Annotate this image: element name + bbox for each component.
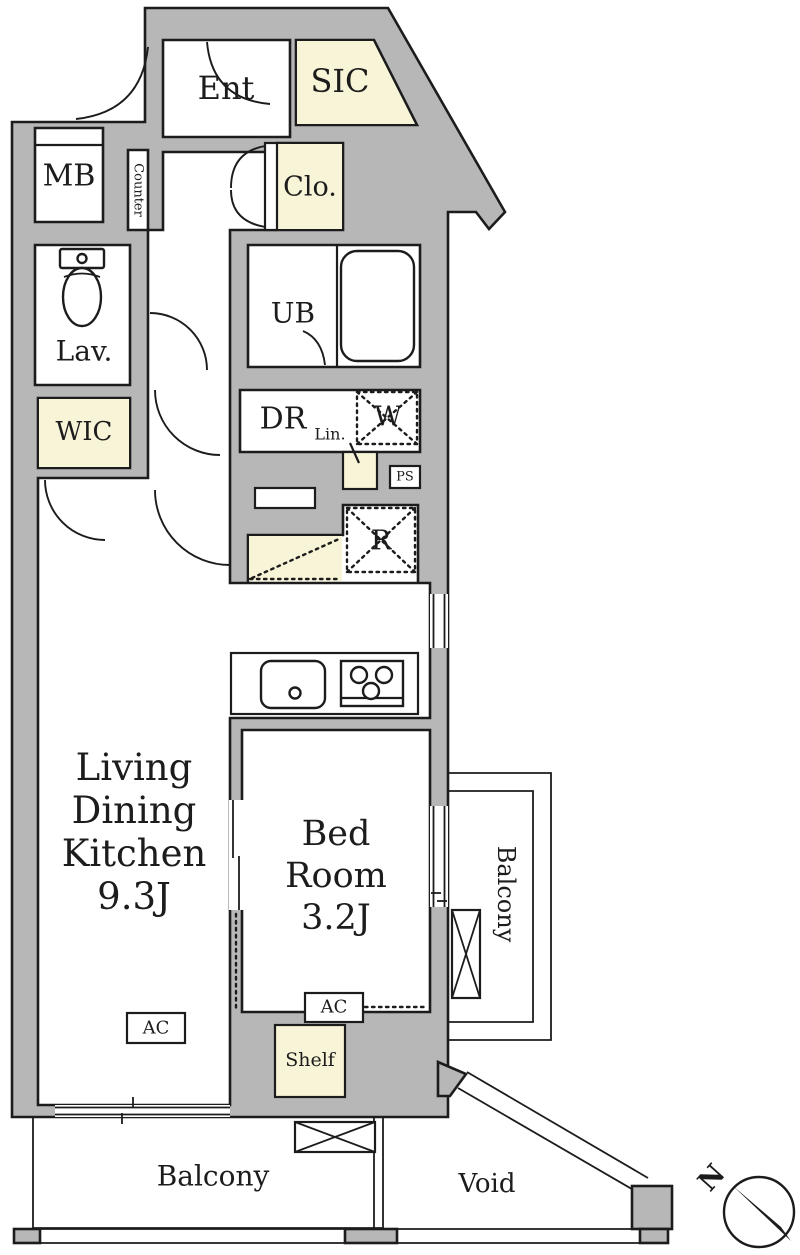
label-ldk: Living Dining Kitchen 9.3J <box>62 746 207 918</box>
compass-circle <box>724 1177 794 1247</box>
property-line <box>14 1229 668 1243</box>
label-counter: Counter <box>131 163 146 217</box>
sink-icon <box>261 661 325 708</box>
void-railing <box>438 1062 672 1229</box>
label-mb: MB <box>43 159 96 194</box>
void-corner-post <box>632 1186 672 1229</box>
toilet-icon <box>60 249 104 326</box>
label-ldk-line1: Living <box>62 746 207 789</box>
label-dressing-room: DR <box>260 402 307 437</box>
label-ac-living: AC <box>143 1018 170 1039</box>
label-closet: Clo. <box>283 172 337 203</box>
label-void: Void <box>458 1169 515 1199</box>
floorplan-drawing <box>0 0 800 1255</box>
closet-door-arc-bottom <box>231 190 265 227</box>
label-shelf: Shelf <box>285 1049 335 1071</box>
label-unit-bath: UB <box>271 297 315 330</box>
linen-area <box>343 452 377 489</box>
ldk-door-arc <box>155 490 230 565</box>
front-door-arc <box>76 47 148 119</box>
floorplan: Ent SIC MB Counter Clo. Lav. UB DR Lin. … <box>0 0 800 1255</box>
label-bedroom-line1: Bed <box>285 813 387 855</box>
compass <box>724 1177 794 1247</box>
wic-door-arc <box>45 480 105 540</box>
label-pipe-space: PS <box>396 470 414 485</box>
label-lavatory: Lav. <box>56 335 113 368</box>
label-balcony-side: Balcony <box>492 846 520 943</box>
label-entrance: Ent <box>198 69 255 107</box>
label-refrigerator: R <box>371 526 391 557</box>
lavatory-door-arc <box>150 313 207 370</box>
label-washer: W <box>374 402 402 433</box>
label-linen: Lin. <box>314 425 345 444</box>
washroom-door-arc <box>155 390 220 455</box>
bath-door-arc <box>303 331 325 365</box>
label-bedroom-line2: Room <box>285 855 387 897</box>
kitchen-icons <box>231 653 418 714</box>
label-sic: SIC <box>310 62 369 100</box>
label-wic: WIC <box>56 417 113 447</box>
pocket-door-box <box>255 488 315 508</box>
label-ac-bedroom: AC <box>321 997 348 1018</box>
sink-drain <box>290 688 301 699</box>
closet-door-panel <box>265 143 277 230</box>
label-ldk-size: 9.3J <box>62 875 207 918</box>
label-ldk-line3: Kitchen <box>62 832 207 875</box>
bathtub-icon <box>337 245 414 367</box>
label-bedroom: Bed Room 3.2J <box>285 813 387 939</box>
label-balcony-bottom: Balcony <box>157 1160 270 1193</box>
label-bedroom-size: 3.2J <box>285 897 387 939</box>
label-ldk-line2: Dining <box>62 789 207 832</box>
